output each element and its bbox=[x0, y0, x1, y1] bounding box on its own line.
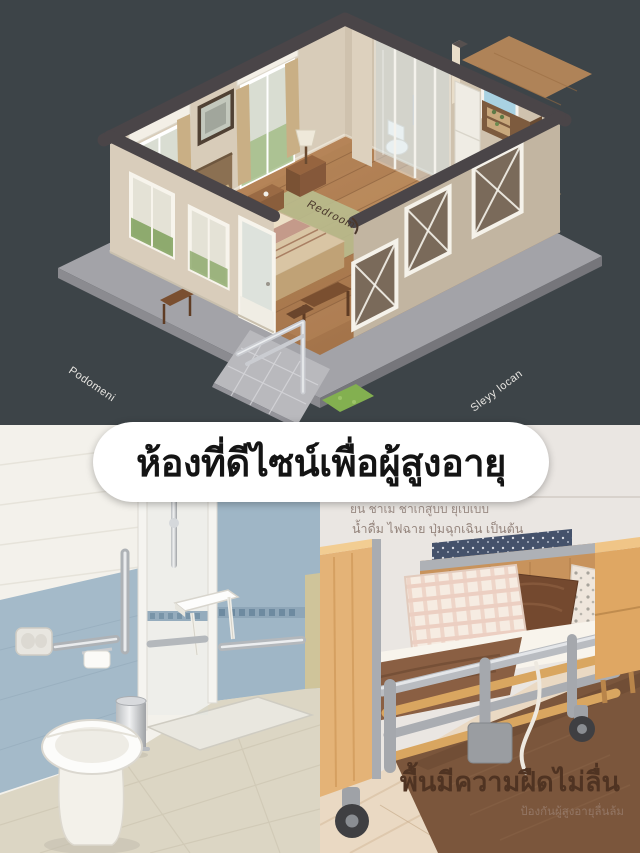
caption-main: พื้นมีความฝืดไม่ลื่น bbox=[400, 761, 621, 797]
flush-plate bbox=[16, 628, 52, 655]
footboard bbox=[320, 539, 381, 797]
caption-sub: ป้องกันผู้สูงอายุลื่นล้ม bbox=[520, 803, 624, 818]
caption-line1: ยน ชาเม ชาเกสูบบ ยุเบเบบ bbox=[350, 502, 489, 517]
lift-mechanism bbox=[468, 723, 512, 763]
floorplan-illustration: Redroom Podomeni Sleyy locan bbox=[0, 0, 640, 425]
post-image: Redroom Podomeni Sleyy locan bbox=[0, 0, 640, 853]
caption-line2: น้ำดื่ม ไฟฉาย ปุ่มฉุกเฉิน เป็นต้น bbox=[352, 519, 524, 537]
title-banner: ห้องที่ดีไซน์เพื่อผู้สูงอายุ bbox=[93, 422, 549, 502]
title-banner-text: ห้องที่ดีไซน์เพื่อผู้สูงอายุ bbox=[136, 432, 506, 493]
toilet-paper-holder bbox=[82, 649, 112, 668]
floorplan-svg: Redroom Podomeni Sleyy locan bbox=[0, 0, 640, 425]
entry-door bbox=[240, 218, 274, 332]
lamp bbox=[296, 130, 316, 146]
